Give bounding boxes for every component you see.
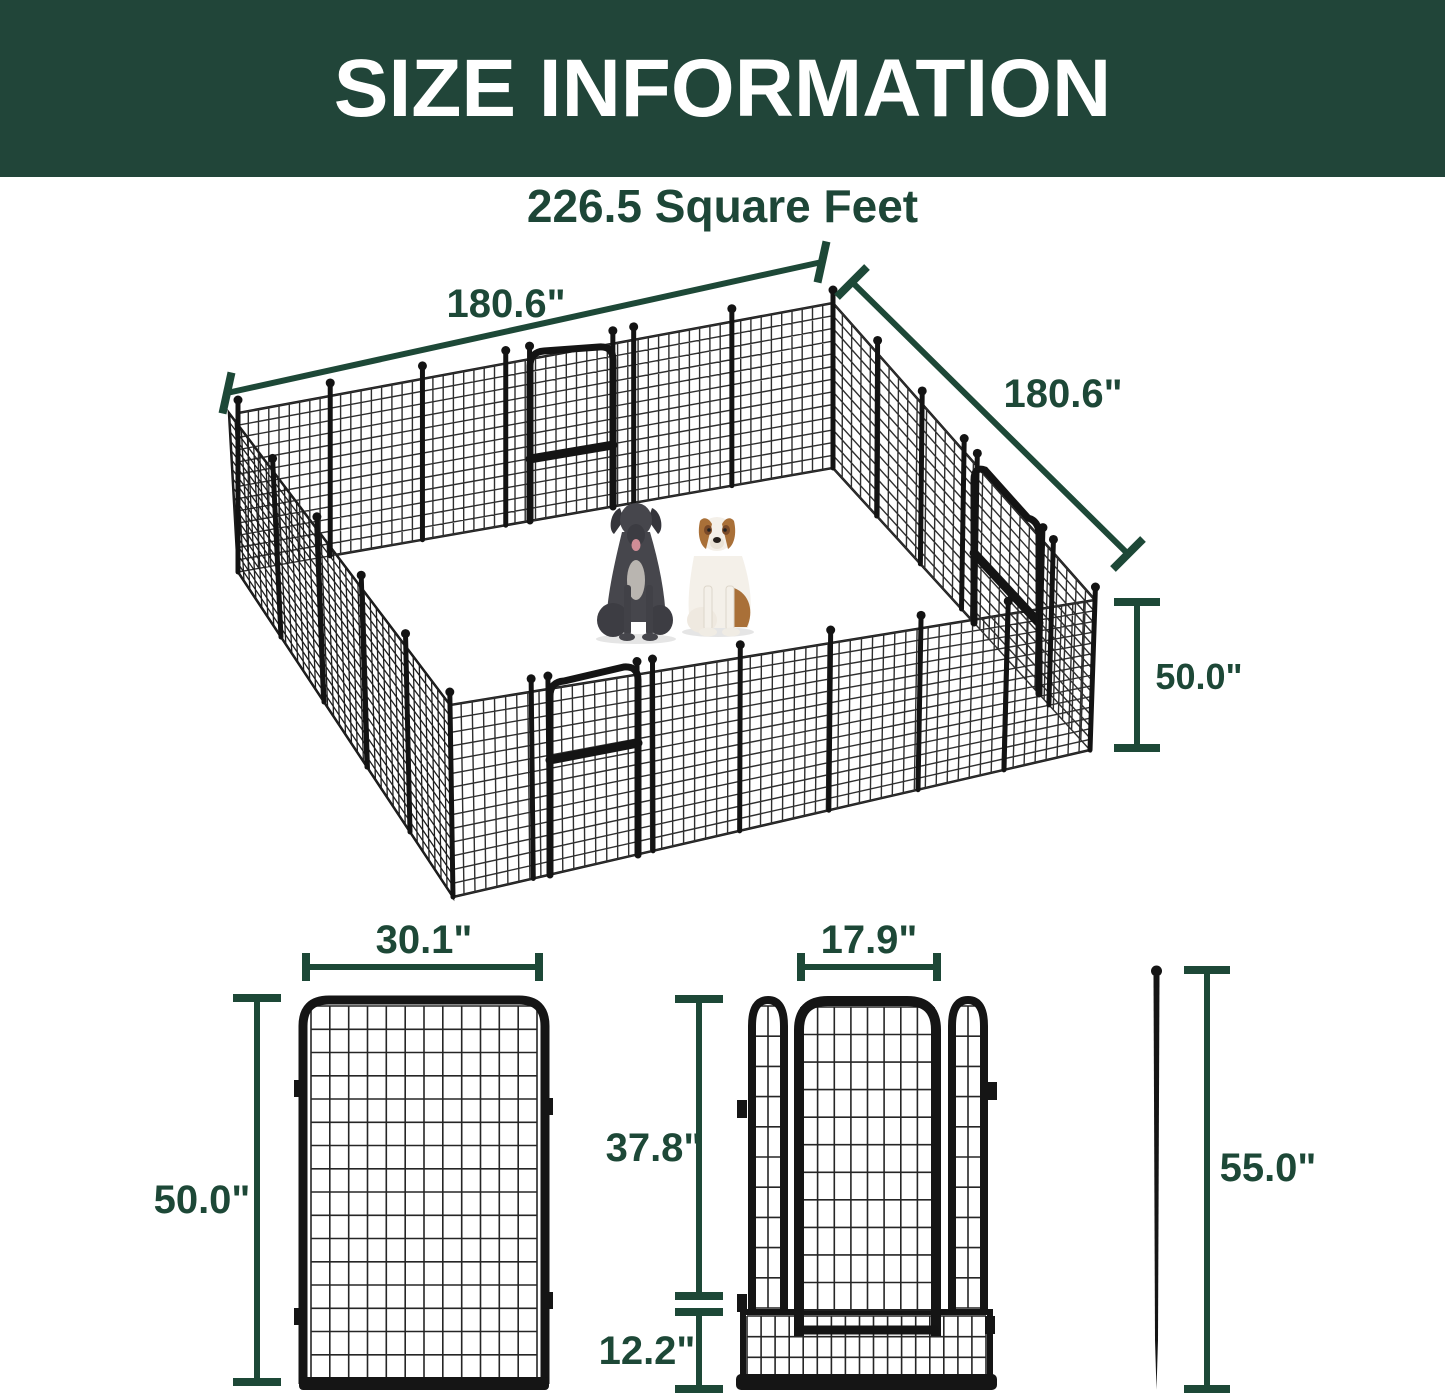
dimension-panel-width: 30.1" xyxy=(306,918,539,981)
panel-bottom-bar xyxy=(299,1377,549,1390)
dimension-door-height: 37.8" xyxy=(606,999,723,1296)
pen-isometric-diagram: 180.6" 180.6" 50.0" xyxy=(223,242,1243,898)
panel-connector-tab xyxy=(294,1308,304,1325)
dim-door-width-label: 17.9" xyxy=(821,918,918,962)
size-information-page: SIZE INFORMATION 226.5 Square Feet xyxy=(0,0,1445,1395)
dim-door-height-label: 37.8" xyxy=(606,1126,703,1170)
dimension-stake-length: 55.0" xyxy=(1184,970,1316,1389)
panel-connector-tab xyxy=(543,1098,553,1115)
dog-saint-bernard xyxy=(682,517,754,637)
size-diagram: 180.6" 180.6" 50.0" xyxy=(0,0,1445,1395)
door-connector-tab xyxy=(987,1082,997,1100)
panel-connector-tab xyxy=(543,1292,553,1309)
door-panel-front-view-diagram: 17.9" 37.8" 12.2" xyxy=(599,918,997,1390)
door-assembly-bottom-bar xyxy=(736,1374,997,1390)
panel-front-view-diagram: 30.1" 50.0" xyxy=(154,918,553,1390)
dim-panel-height-label: 50.0" xyxy=(154,1178,251,1222)
door-mesh xyxy=(801,1007,934,1310)
door-connector-tab xyxy=(737,1100,747,1118)
dimension-door-width: 17.9" xyxy=(801,918,937,981)
dimension-panel-height: 50.0" xyxy=(154,998,281,1382)
panel-connector-tab xyxy=(294,1080,304,1097)
dimension-pen-height: 50.0" xyxy=(1114,602,1243,748)
stake-rod xyxy=(1154,976,1160,1390)
door-left-strip-mesh xyxy=(754,1006,782,1308)
door-connector-tab xyxy=(737,1294,747,1312)
dim-back-left-label: 180.6" xyxy=(446,282,565,326)
bottom-section-mesh xyxy=(747,1316,986,1378)
ground-stake-diagram: 55.0" xyxy=(1151,966,1316,1391)
stake-ball-top xyxy=(1151,966,1162,977)
dim-bottom-height-label: 12.2" xyxy=(599,1329,696,1373)
dim-stake-length-label: 55.0" xyxy=(1220,1146,1317,1190)
door-connector-tab xyxy=(985,1316,995,1334)
dim-panel-width-label: 30.1" xyxy=(376,918,473,962)
dimension-bottom-height: 12.2" xyxy=(599,1312,723,1389)
door-right-strip-mesh xyxy=(954,1006,982,1308)
panel-mesh xyxy=(311,1006,537,1378)
dog-great-dane xyxy=(596,503,676,644)
bottom-section-frame xyxy=(743,1312,990,1380)
dim-pen-height-label: 50.0" xyxy=(1155,656,1242,697)
dim-back-right-label: 180.6" xyxy=(1003,372,1122,416)
